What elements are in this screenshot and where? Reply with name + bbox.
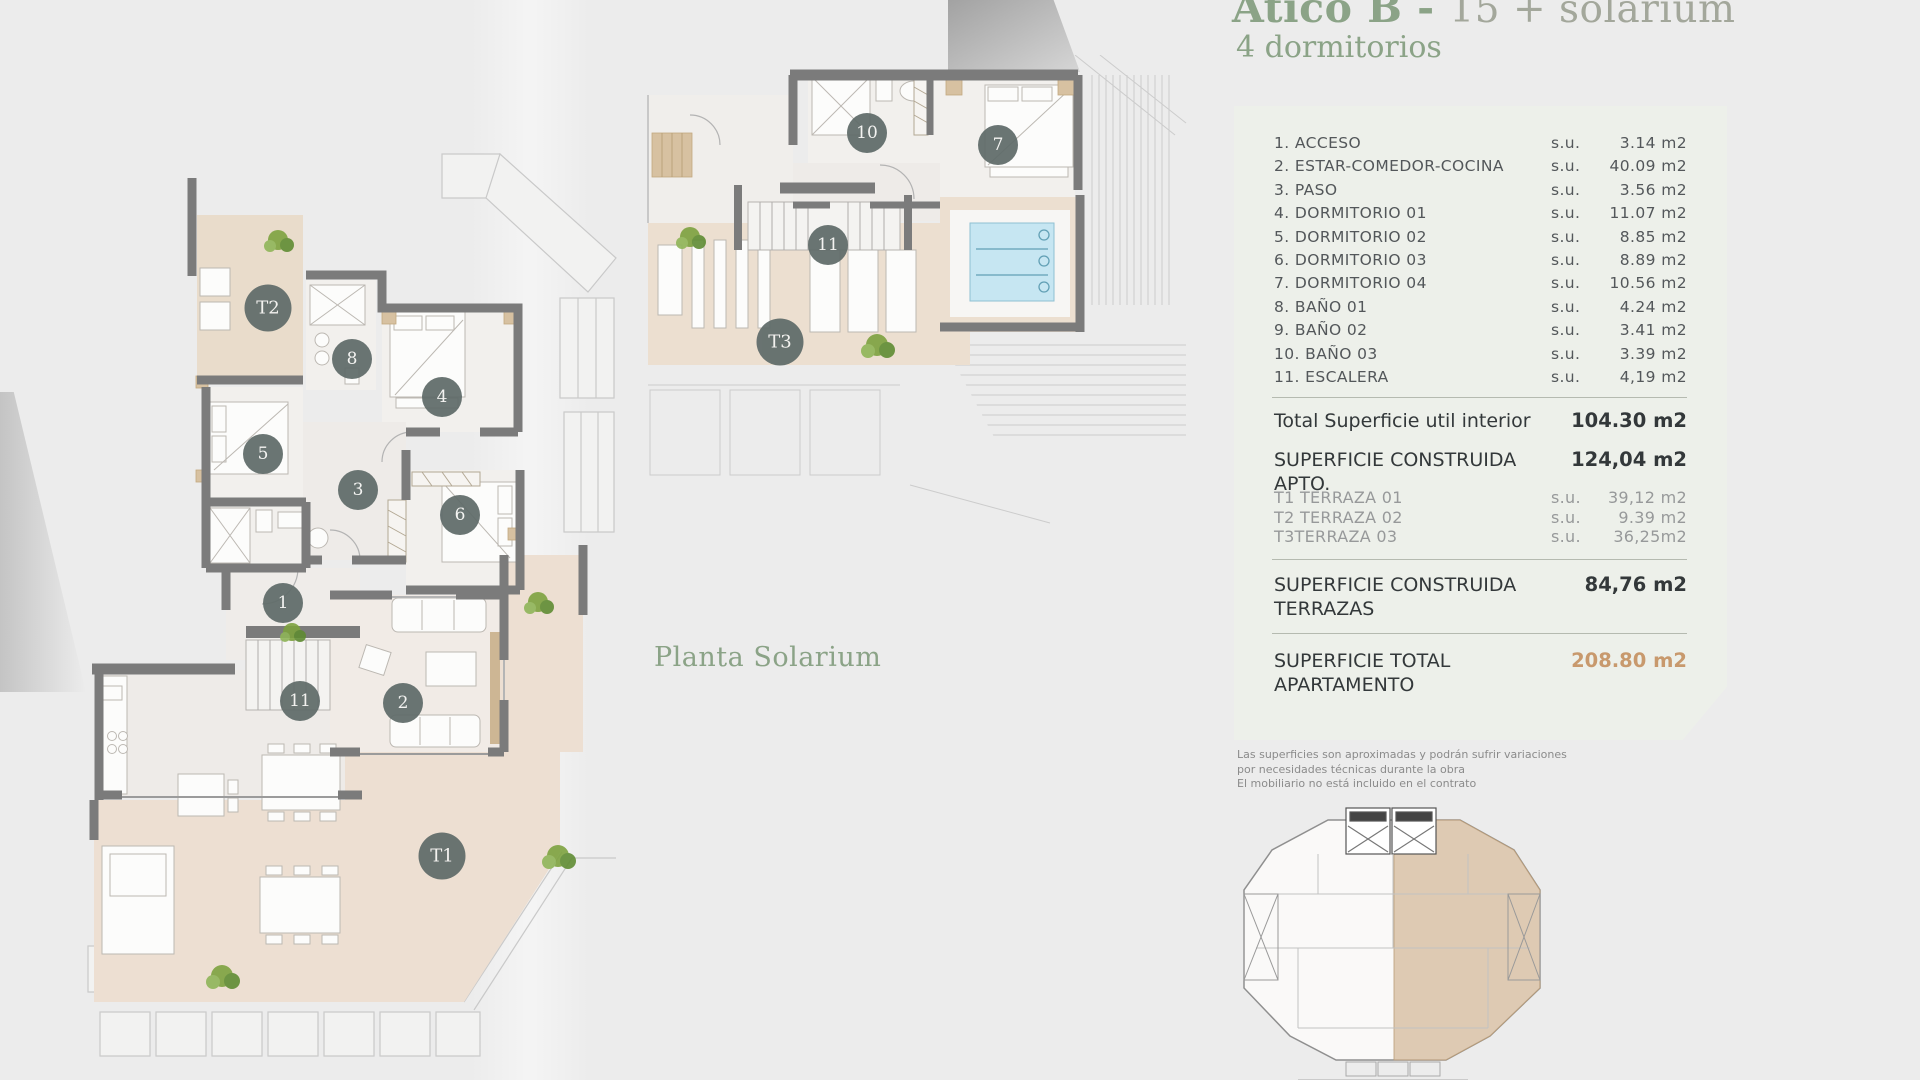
room-area: 4.24 m2: [1591, 296, 1687, 319]
terrace-area: 36,25m2: [1591, 527, 1687, 547]
su-label: s.u.: [1551, 343, 1591, 366]
building-key-plan: [1228, 798, 1558, 1080]
su-label: s.u.: [1551, 179, 1591, 202]
room-marker-7: 7: [978, 125, 1018, 165]
total-interior-label: Total Superficie util interior: [1274, 409, 1531, 433]
constructed-apt-value: 124,04 m2: [1571, 448, 1687, 471]
page-title: Ático B - 15 + solarium: [1232, 0, 1735, 32]
terrace-name: T2 TERRAZA 02: [1274, 508, 1551, 528]
room-area: 4,19 m2: [1591, 366, 1687, 389]
room-marker-T2: T2: [245, 285, 292, 332]
room-area: 11.07 m2: [1591, 202, 1687, 225]
su-label: s.u.: [1551, 508, 1591, 528]
room-name: 11. ESCALERA: [1274, 366, 1551, 389]
room-marker-3: 3: [338, 470, 378, 510]
total-interior-row: Total Superficie util interior 104.30 m2: [1274, 409, 1687, 433]
su-label: s.u.: [1551, 226, 1591, 249]
su-label: s.u.: [1551, 319, 1591, 342]
su-label: s.u.: [1551, 132, 1591, 155]
room-marker-4: 4: [422, 377, 462, 417]
room-area: 40.09 m2: [1591, 155, 1687, 178]
areas-panel: 1. ACCESOs.u.3.14 m22. ESTAR-COMEDOR-COC…: [1234, 106, 1727, 740]
terrace-area: 39,12 m2: [1591, 488, 1687, 508]
room-row: 6. DORMITORIO 03s.u.8.89 m2: [1274, 249, 1687, 272]
room-area: 10.56 m2: [1591, 272, 1687, 295]
key-plan-drawing: [1228, 798, 1558, 1080]
room-row: 7. DORMITORIO 04s.u.10.56 m2: [1274, 272, 1687, 295]
su-label: s.u.: [1551, 296, 1591, 319]
room-area: 3.14 m2: [1591, 132, 1687, 155]
terrace-row: T3TERRAZA 03s.u.36,25m2: [1274, 527, 1687, 547]
room-name: 8. BAÑO 01: [1274, 296, 1551, 319]
terrace-row: T2 TERRAZA 02s.u.9.39 m2: [1274, 508, 1687, 528]
room-area: 3.56 m2: [1591, 179, 1687, 202]
su-label: s.u.: [1551, 202, 1591, 225]
main-plan-markers: T2845361112T1: [60, 140, 620, 1070]
room-name: 5. DORMITORIO 02: [1274, 226, 1551, 249]
divider: [1272, 397, 1687, 398]
room-area: 8.85 m2: [1591, 226, 1687, 249]
constructed-terraces-row: SUPERFICIE CONSTRUIDA TERRAZAS 84,76 m2: [1274, 573, 1687, 621]
terrace-area-list: T1 TERRAZA 01s.u.39,12 m2T2 TERRAZA 02s.…: [1274, 488, 1687, 547]
solarium-plan-markers: 10711T3: [630, 55, 1190, 525]
room-row: 1. ACCESOs.u.3.14 m2: [1274, 132, 1687, 155]
room-name: 6. DORMITORIO 03: [1274, 249, 1551, 272]
room-row: 2. ESTAR-COMEDOR-COCINAs.u.40.09 m2: [1274, 155, 1687, 178]
total-apartment-label: SUPERFICIE TOTAL APARTAMENTO: [1274, 649, 1484, 697]
room-area: 8.89 m2: [1591, 249, 1687, 272]
total-apartment-row: SUPERFICIE TOTAL APARTAMENTO 208.80 m2: [1274, 649, 1687, 697]
room-name: 2. ESTAR-COMEDOR-COCINA: [1274, 155, 1551, 178]
room-marker-11: 11: [280, 681, 320, 721]
room-row: 8. BAÑO 01s.u.4.24 m2: [1274, 296, 1687, 319]
room-area-list: 1. ACCESOs.u.3.14 m22. ESTAR-COMEDOR-COC…: [1274, 132, 1687, 389]
disclaimer-line: Las superficies son aproximadas y podrán…: [1237, 748, 1567, 763]
disclaimer-text: Las superficies son aproximadas y podrán…: [1237, 748, 1567, 792]
room-marker-2: 2: [383, 683, 423, 723]
su-label: s.u.: [1551, 527, 1591, 547]
room-name: 10. BAÑO 03: [1274, 343, 1551, 366]
room-area: 3.41 m2: [1591, 319, 1687, 342]
room-name: 9. BAÑO 02: [1274, 319, 1551, 342]
terrace-row: T1 TERRAZA 01s.u.39,12 m2: [1274, 488, 1687, 508]
total-apartment-value: 208.80 m2: [1571, 649, 1687, 672]
constructed-terraces-label: SUPERFICIE CONSTRUIDA TERRAZAS: [1274, 573, 1524, 621]
total-interior-value: 104.30 m2: [1571, 409, 1687, 432]
divider: [1272, 633, 1687, 634]
terrace-area: 9.39 m2: [1591, 508, 1687, 528]
room-marker-T3: T3: [757, 319, 804, 366]
room-row: 11. ESCALERAs.u.4,19 m2: [1274, 366, 1687, 389]
su-label: s.u.: [1551, 488, 1591, 508]
page-subtitle: 4 dormitorios: [1236, 30, 1442, 65]
divider: [1272, 559, 1687, 560]
su-label: s.u.: [1551, 155, 1591, 178]
room-row: 4. DORMITORIO 01s.u.11.07 m2: [1274, 202, 1687, 225]
room-marker-1: 1: [263, 583, 303, 623]
unit-highlight: [1394, 820, 1540, 1060]
title-unit-name: Ático B -: [1232, 0, 1449, 32]
terrace-name: T1 TERRAZA 01: [1274, 488, 1551, 508]
room-area: 3.39 m2: [1591, 343, 1687, 366]
main-floor-plan: T2845361112T1: [60, 140, 620, 1070]
room-marker-8: 8: [332, 339, 372, 379]
constructed-terraces-value: 84,76 m2: [1585, 573, 1687, 596]
room-row: 5. DORMITORIO 02s.u.8.85 m2: [1274, 226, 1687, 249]
su-label: s.u.: [1551, 272, 1591, 295]
room-marker-5: 5: [243, 434, 283, 474]
room-marker-10: 10: [847, 113, 887, 153]
su-label: s.u.: [1551, 249, 1591, 272]
solarium-caption: Planta Solarium: [654, 642, 881, 673]
disclaimer-line: El mobiliario no está incluido en el con…: [1237, 777, 1567, 792]
room-marker-6: 6: [440, 495, 480, 535]
floorplan-sheet: T2845361112T1: [0, 0, 1920, 1080]
room-row: 9. BAÑO 02s.u.3.41 m2: [1274, 319, 1687, 342]
room-name: 1. ACCESO: [1274, 132, 1551, 155]
disclaimer-line: por necesidades técnicas durante la obra: [1237, 763, 1567, 778]
room-name: 4. DORMITORIO 01: [1274, 202, 1551, 225]
room-row: 3. PASOs.u.3.56 m2: [1274, 179, 1687, 202]
room-name: 7. DORMITORIO 04: [1274, 272, 1551, 295]
su-label: s.u.: [1551, 366, 1591, 389]
room-name: 3. PASO: [1274, 179, 1551, 202]
solarium-floor-plan: 10711T3: [630, 55, 1190, 525]
room-marker-T1: T1: [419, 833, 466, 880]
title-unit-number: 15 + solarium: [1449, 0, 1735, 32]
room-row: 10. BAÑO 03s.u.3.39 m2: [1274, 343, 1687, 366]
balcony-edge: [1298, 1062, 1468, 1080]
terrace-name: T3TERRAZA 03: [1274, 527, 1551, 547]
room-marker-11: 11: [808, 225, 848, 265]
